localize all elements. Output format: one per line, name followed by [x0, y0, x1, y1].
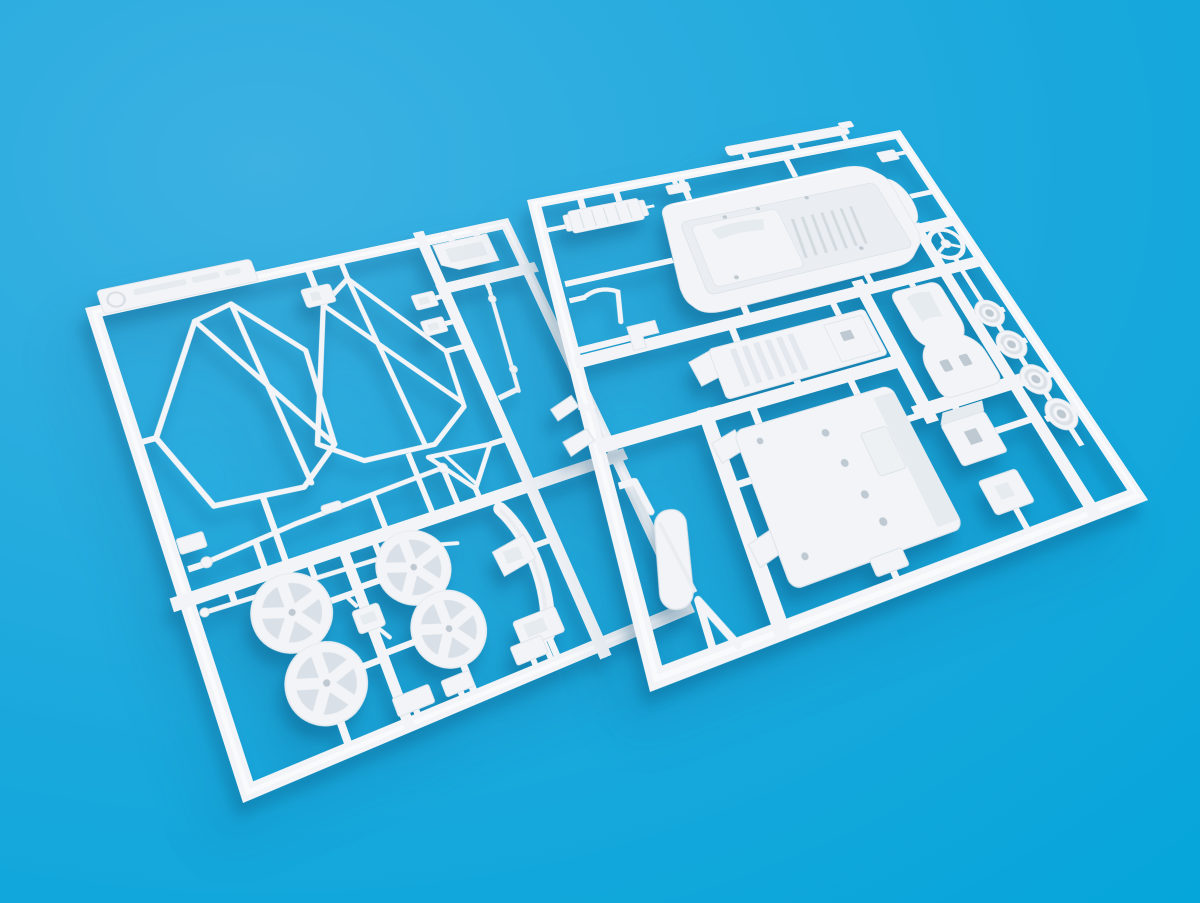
left-rail-tab	[176, 531, 207, 554]
photo-of-model-kit-sprues	[0, 0, 1200, 903]
mounting-bracket	[294, 268, 336, 308]
linkage-hook	[568, 286, 626, 332]
axle-coupler	[346, 589, 390, 647]
roll-cage-side-frame-right	[256, 248, 522, 538]
